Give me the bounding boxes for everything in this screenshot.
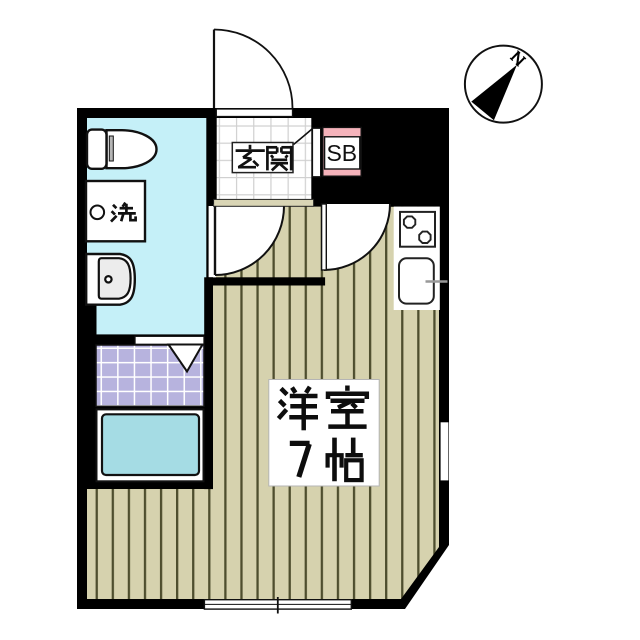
svg-text:SB: SB [326, 140, 357, 166]
